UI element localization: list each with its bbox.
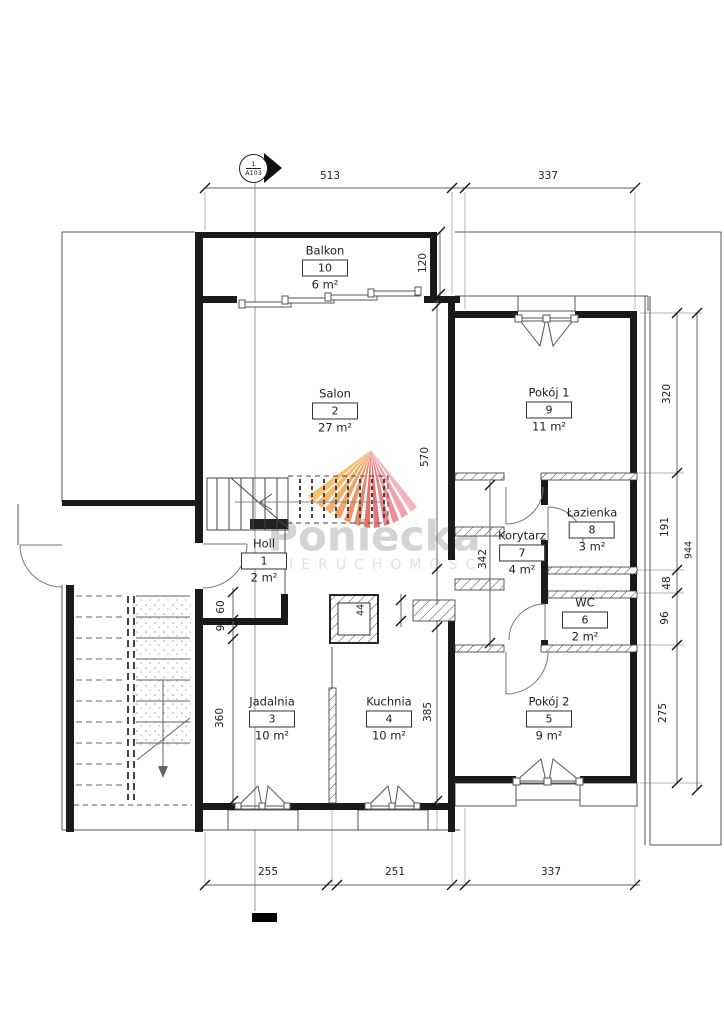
- room-area: 11 m²: [532, 421, 566, 434]
- room-number-box: 6: [562, 611, 608, 629]
- room-number-box: 2: [312, 402, 358, 420]
- dim-salon-length: 570: [419, 447, 431, 467]
- dim-room1-length: 320: [661, 384, 673, 404]
- room-label-jadalnia: Jadalnia 3 10 m²: [249, 695, 295, 742]
- room-name: Balkon: [306, 244, 345, 257]
- drawing-reference-marker: 1 A103: [239, 154, 268, 183]
- dim-total-length: 944: [684, 541, 695, 559]
- room-number-box: 1: [241, 552, 287, 570]
- room-area: 2 m²: [251, 572, 278, 585]
- room-label-korytarz: Korytarz 7 4 m²: [498, 529, 546, 576]
- room-label-salon: Salon 2 27 m²: [312, 387, 358, 434]
- dim-dining-length: 360: [214, 708, 226, 728]
- room-name: Korytarz: [498, 529, 546, 542]
- room-area: 9 m²: [536, 730, 563, 743]
- dim-bathroom-length: 191: [659, 517, 671, 537]
- room-number-box: 10: [302, 259, 348, 277]
- room-area: 10 m²: [255, 730, 289, 743]
- dim-flue-width: 44: [356, 604, 367, 616]
- room-number-box: 8: [569, 521, 615, 539]
- room-area: 6 m²: [312, 279, 339, 292]
- dim-balcony-depth: 120: [417, 253, 429, 273]
- dim-bottom-center: 251: [385, 866, 405, 878]
- room-area: 10 m²: [372, 730, 406, 743]
- room-label-holl: Holl 1 2 m²: [241, 537, 287, 584]
- dim-top-right: 337: [538, 170, 558, 182]
- dim-bottom-left: 255: [258, 866, 278, 878]
- room-area: 3 m²: [579, 541, 606, 554]
- floor-plan-page: Poniecka NIERUCHOMOŚCI: [0, 0, 724, 1024]
- room-label-wc: WC 6 2 m²: [562, 596, 608, 643]
- room-name: WC: [575, 596, 594, 609]
- room-name: Jadalnia: [249, 695, 295, 708]
- room-number-box: 7: [499, 544, 545, 562]
- dim-corridor-length: 342: [477, 549, 489, 569]
- room-area: 27 m²: [318, 422, 352, 435]
- room-area: 2 m²: [572, 631, 599, 644]
- dim-top-left: 513: [320, 170, 340, 182]
- marker-sheet: A103: [244, 169, 263, 177]
- room-name: Salon: [319, 387, 351, 400]
- room-number-box: 9: [526, 401, 572, 419]
- room-name: Holl: [253, 537, 275, 550]
- room-label-pokoj-1: Pokój 1 9 11 m²: [526, 386, 572, 433]
- room-label-balkon: Balkon 10 6 m²: [302, 244, 348, 291]
- room-name: Łazienka: [567, 506, 618, 519]
- chimney-shaft: [330, 595, 378, 643]
- room-area: 4 m²: [509, 564, 536, 577]
- room-name: Kuchnia: [366, 695, 411, 708]
- dim-duct-height: 48: [661, 576, 673, 589]
- section-cut-mark: [252, 913, 277, 922]
- room-number-box: 3: [249, 710, 295, 728]
- exterior-stairs: [74, 596, 192, 805]
- room-name: Pokój 1: [528, 386, 569, 399]
- dim-room2-length: 275: [657, 703, 669, 723]
- dim-wc-length: 96: [659, 611, 671, 624]
- room-label-lazienka: Łazienka 8 3 m²: [567, 506, 618, 553]
- room-number-box: 5: [526, 710, 572, 728]
- dim-kitchen-length: 385: [422, 702, 434, 722]
- room-label-pokoj-2: Pokój 2 5 9 m²: [526, 695, 572, 742]
- dim-wall-offset: 9: [215, 625, 227, 632]
- dim-holl-opening: 60: [215, 600, 227, 613]
- room-number-box: 4: [366, 710, 412, 728]
- dim-bottom-right: 337: [541, 866, 561, 878]
- door-swings: [20, 487, 583, 694]
- room-name: Pokój 2: [528, 695, 569, 708]
- marker-number: 1: [246, 160, 260, 169]
- room-label-kuchnia: Kuchnia 4 10 m²: [366, 695, 412, 742]
